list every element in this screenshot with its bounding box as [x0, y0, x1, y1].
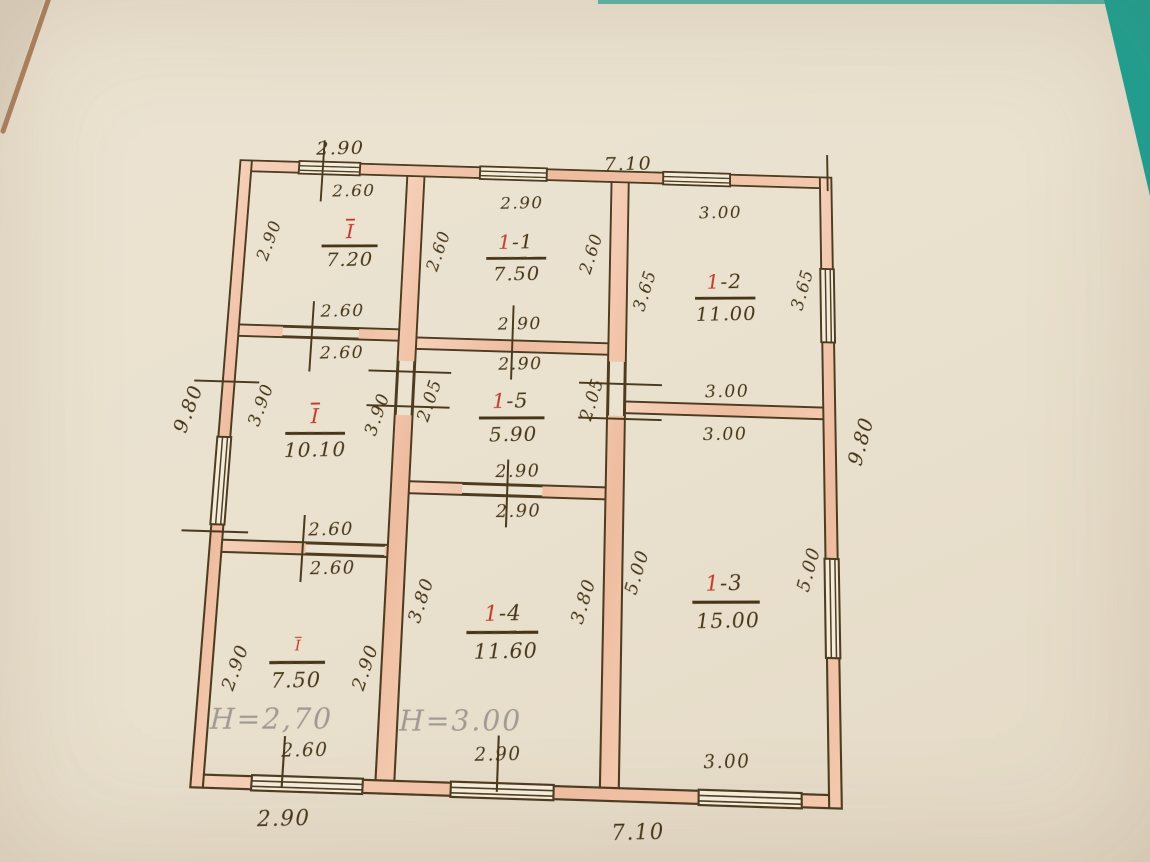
dim-1-2-bottom: 3.00 — [704, 382, 749, 402]
dim-bl-bottom: 2.60 — [281, 739, 328, 762]
room-mid-number-red: I — [311, 404, 321, 428]
dim-1-2-top: 3.00 — [698, 204, 742, 223]
wall-interior-h3 — [624, 400, 824, 420]
dim-1-2-left: 3.65 — [630, 268, 661, 314]
dim-1-4-bottom: 2.90 — [474, 744, 521, 767]
dim-1-3-bottom: 3.00 — [703, 751, 751, 774]
dim-1-4-left: 3.80 — [405, 575, 439, 625]
dim-1-3-right: 5.00 — [794, 545, 826, 595]
dim-1-1-right: 2.60 — [576, 231, 607, 276]
room-1-3-number-rest: -3 — [719, 570, 743, 595]
room-1-1-number: 1-1 — [498, 231, 534, 254]
window-room-1-1-top — [479, 165, 548, 181]
room-1-3-underline — [692, 601, 759, 604]
door-opening-tl-mid — [282, 326, 359, 340]
room-bl-area: 7.50 — [271, 667, 322, 693]
room-mid-number: I — [311, 404, 321, 428]
dim-exterior-top-right: 7.10 — [604, 152, 653, 175]
room-1-1-underline — [486, 257, 546, 260]
room-1-2-underline — [695, 297, 755, 300]
dim-1-4-right: 3.80 — [567, 576, 600, 626]
room-bl-number-red: I — [295, 638, 302, 655]
window-room-tl-top — [298, 160, 362, 176]
room-1-2-area: 11.00 — [695, 302, 757, 326]
dim-bl-right: 2.90 — [349, 642, 384, 694]
dim-1-2-right: 3.65 — [788, 267, 818, 313]
door-opening-mid-bl — [305, 542, 385, 557]
dim-1-1-left: 2.60 — [423, 228, 455, 273]
dim-mid-right: 3.90 — [361, 391, 394, 439]
room-1-2-number-rest: -2 — [720, 270, 743, 293]
window-room-1-4-bottom — [449, 780, 555, 801]
room-1-4-underline — [466, 631, 538, 634]
dim-mid-bottom: 2.60 — [308, 519, 354, 540]
room-1-1-area: 7.50 — [493, 262, 541, 285]
room-bl-underline — [269, 661, 325, 664]
room-1-5-number-rest: -5 — [506, 389, 529, 413]
dim-mid-left: 3.90 — [245, 381, 279, 429]
room-1-4-number: 1-4 — [484, 600, 522, 626]
window-room-bl-bottom — [250, 774, 364, 795]
window-room-mid-left — [209, 436, 232, 526]
desk-edge — [598, 0, 1150, 4]
dim-1-3-top: 3.00 — [702, 425, 748, 446]
room-1-5-number: 1-5 — [492, 389, 529, 413]
room-1-1-number-red: 1 — [498, 231, 512, 253]
dim-exterior-bottom-left: 2.90 — [257, 804, 311, 832]
wall-interior-vertical-right — [599, 181, 630, 789]
dimension-tick — [826, 155, 828, 191]
room-1-3-area: 15.00 — [696, 607, 761, 633]
room-1-4-number-red: 1 — [484, 601, 499, 626]
room-1-5-area: 5.90 — [489, 422, 538, 447]
dim-bl-top: 2.60 — [310, 558, 356, 579]
room-1-2-number: 1-2 — [706, 270, 743, 293]
dim-tl-bottom: 2.60 — [321, 302, 365, 322]
door-opening-1-5-right — [607, 361, 626, 416]
room-mid-underline — [285, 432, 345, 435]
room-tl-number: I — [346, 221, 355, 243]
room-1-4-area: 11.60 — [474, 638, 538, 665]
dim-tl-left: 2.90 — [253, 218, 286, 263]
dim-bl-left: 2.90 — [218, 642, 254, 694]
dim-exterior-bottom-right: 7.10 — [611, 818, 665, 846]
dim-1-4-top: 2.90 — [496, 501, 542, 522]
floor-plan: 2.90 7.10 2.90 7.10 9.80 9.80 2.60 2.90 … — [189, 159, 843, 810]
room-tl-underline — [322, 244, 378, 246]
window-room-1-2-top — [662, 171, 731, 187]
dim-tl-top: 2.60 — [332, 182, 375, 201]
room-tl-area: 7.20 — [326, 248, 373, 271]
dim-1-5-left: 2.05 — [414, 377, 447, 424]
dim-exterior-left: 9.80 — [168, 382, 208, 436]
room-tl-number-red: I — [346, 221, 355, 243]
room-1-1-number-rest: -1 — [512, 231, 534, 254]
room-bl-height-note: H=2,70 — [209, 703, 333, 737]
room-1-5-underline — [479, 416, 544, 419]
room-1-3-number: 1-3 — [705, 570, 744, 595]
desk-corner — [1104, 0, 1150, 196]
dim-1-1-top: 2.90 — [500, 194, 543, 213]
dim-1-5-top: 2.90 — [498, 354, 543, 374]
dim-1-1-bottom: 2.90 — [498, 315, 542, 335]
room-1-5-number-red: 1 — [492, 389, 507, 413]
room-1-4-number-rest: -4 — [499, 600, 522, 625]
door-opening-1-5-1-4 — [462, 483, 543, 497]
dim-exterior-top-left: 2.90 — [316, 137, 364, 159]
dim-1-3-left: 5.00 — [621, 547, 654, 597]
wall-interior-vertical-left — [374, 175, 425, 782]
room-1-4-height-note: H=3.00 — [399, 705, 522, 739]
window-room-1-2-right — [819, 268, 836, 344]
dim-exterior-right: 9.80 — [843, 414, 879, 468]
room-mid-area: 10.10 — [284, 437, 346, 462]
room-bl-number: I — [295, 638, 302, 655]
dim-1-5-bottom: 2.90 — [495, 461, 540, 482]
window-room-1-3-bottom — [697, 789, 802, 810]
window-room-1-3-right — [823, 558, 841, 660]
floor-plan-photo: 2.90 7.10 2.90 7.10 9.80 9.80 2.60 2.90 … — [0, 0, 1150, 862]
dim-mid-top: 2.60 — [320, 343, 364, 363]
